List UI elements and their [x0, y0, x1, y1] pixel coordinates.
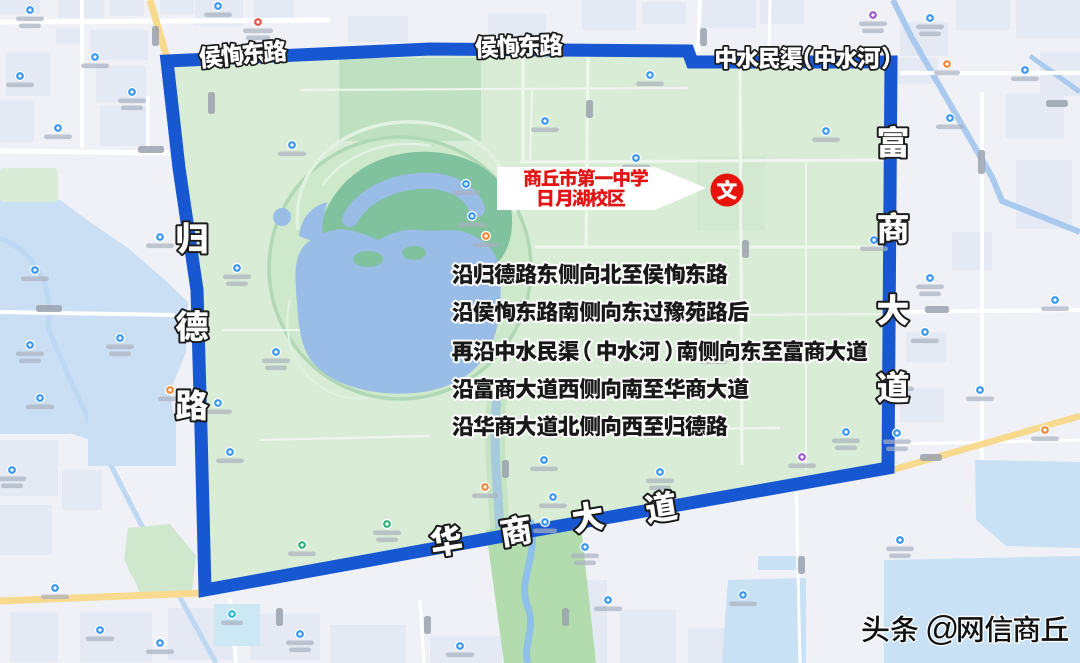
- svg-text:@: @: [925, 610, 960, 648]
